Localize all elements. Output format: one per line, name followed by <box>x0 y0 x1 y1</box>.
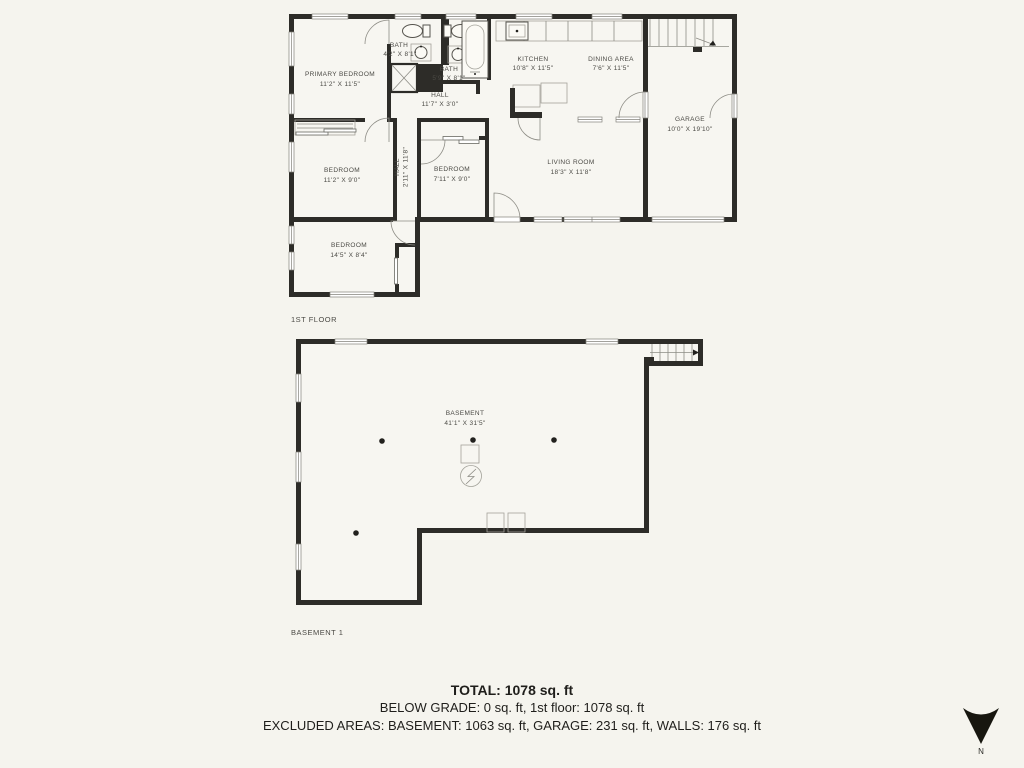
svg-text:DINING AREA: DINING AREA <box>588 56 634 63</box>
door-opening <box>643 92 648 118</box>
door-opening <box>494 217 520 222</box>
svg-text:18'3" X 11'8": 18'3" X 11'8" <box>551 169 592 176</box>
basement-caption: BASEMENT 1 <box>291 628 343 637</box>
floor-plan-page: PRIMARY BEDROOM 11'2" X 11'5" BATH 4'2" … <box>0 0 1024 768</box>
svg-text:BATH: BATH <box>440 66 458 73</box>
svg-text:LIVING ROOM: LIVING ROOM <box>547 159 594 166</box>
first-floor-caption: 1ST FLOOR <box>291 315 337 324</box>
kitchen-sink-icon <box>506 22 528 40</box>
window <box>586 339 618 344</box>
bathtub-icon <box>462 21 488 78</box>
window <box>289 94 294 114</box>
toilet-icon <box>403 25 431 38</box>
window <box>534 217 562 222</box>
svg-text:11'2" X 11'5": 11'2" X 11'5" <box>320 81 361 88</box>
compass-label: N <box>978 747 984 756</box>
svg-text:BASEMENT: BASEMENT <box>446 410 485 417</box>
svg-text:41'1" X 31'5": 41'1" X 31'5" <box>444 420 486 427</box>
window <box>446 14 476 19</box>
svg-text:5'9" X 8'1": 5'9" X 8'1" <box>432 75 466 82</box>
summary-excluded: EXCLUDED AREAS: BASEMENT: 1063 sq. ft, G… <box>0 717 1024 735</box>
svg-text:KITCHEN: KITCHEN <box>518 56 549 63</box>
svg-text:GARAGE: GARAGE <box>675 116 705 123</box>
support-column <box>551 437 557 443</box>
window <box>289 226 294 244</box>
shower-icon <box>391 64 417 92</box>
closet-bedroom-bottom <box>395 258 398 284</box>
window <box>296 374 301 402</box>
svg-text:14'5" X 8'4": 14'5" X 8'4" <box>330 252 368 259</box>
window <box>335 339 367 344</box>
window <box>289 142 294 172</box>
support-column <box>353 530 359 536</box>
svg-text:2'11" X 11'8": 2'11" X 11'8" <box>403 147 410 188</box>
support-column <box>470 437 476 443</box>
svg-text:HALL: HALL <box>431 92 449 99</box>
garage-door-opening <box>652 217 724 222</box>
svg-text:10'0" X 19'10": 10'0" X 19'10" <box>667 126 713 133</box>
svg-text:4'2" X 8'1": 4'2" X 8'1" <box>383 51 417 58</box>
support-column <box>379 438 385 444</box>
svg-text:BEDROOM: BEDROOM <box>324 167 360 174</box>
svg-text:7'11" X 9'0": 7'11" X 9'0" <box>434 176 471 183</box>
floor-plan-canvas: PRIMARY BEDROOM 11'2" X 11'5" BATH 4'2" … <box>0 0 1024 768</box>
window <box>296 544 301 570</box>
window <box>395 14 421 19</box>
svg-text:7'6" X 11'5": 7'6" X 11'5" <box>593 65 630 72</box>
svg-text:BATH: BATH <box>390 42 408 49</box>
door-opening <box>732 94 737 118</box>
svg-text:11'2" X 9'0": 11'2" X 9'0" <box>324 177 361 184</box>
window <box>289 252 294 270</box>
window <box>312 14 348 19</box>
cased-opening <box>616 117 640 122</box>
svg-text:11'7" X 3'0": 11'7" X 3'0" <box>422 101 459 108</box>
window <box>516 14 552 19</box>
window <box>564 217 620 222</box>
svg-text:BEDROOM: BEDROOM <box>434 166 470 173</box>
cased-opening <box>578 117 602 122</box>
svg-text:10'8" X 11'5": 10'8" X 11'5" <box>513 65 554 72</box>
first-floor-plan: PRIMARY BEDROOM 11'2" X 11'5" BATH 4'2" … <box>289 14 737 324</box>
summary-total: TOTAL: 1078 sq. ft <box>0 681 1024 699</box>
summary-below-grade: BELOW GRADE: 0 sq. ft, 1st floor: 1078 s… <box>0 699 1024 717</box>
window <box>330 292 374 297</box>
area-summary: TOTAL: 1078 sq. ft BELOW GRADE: 0 sq. ft… <box>0 681 1024 734</box>
window <box>289 32 294 66</box>
basement-plan: BASEMENT 41'1" X 31'5" BASEMENT 1 <box>291 339 703 637</box>
window <box>592 14 622 19</box>
svg-text:HALL: HALL <box>394 158 401 176</box>
window <box>296 452 301 482</box>
basement-footprint <box>296 339 703 605</box>
svg-text:BEDROOM: BEDROOM <box>331 242 367 249</box>
svg-text:PRIMARY BEDROOM: PRIMARY BEDROOM <box>305 71 375 78</box>
